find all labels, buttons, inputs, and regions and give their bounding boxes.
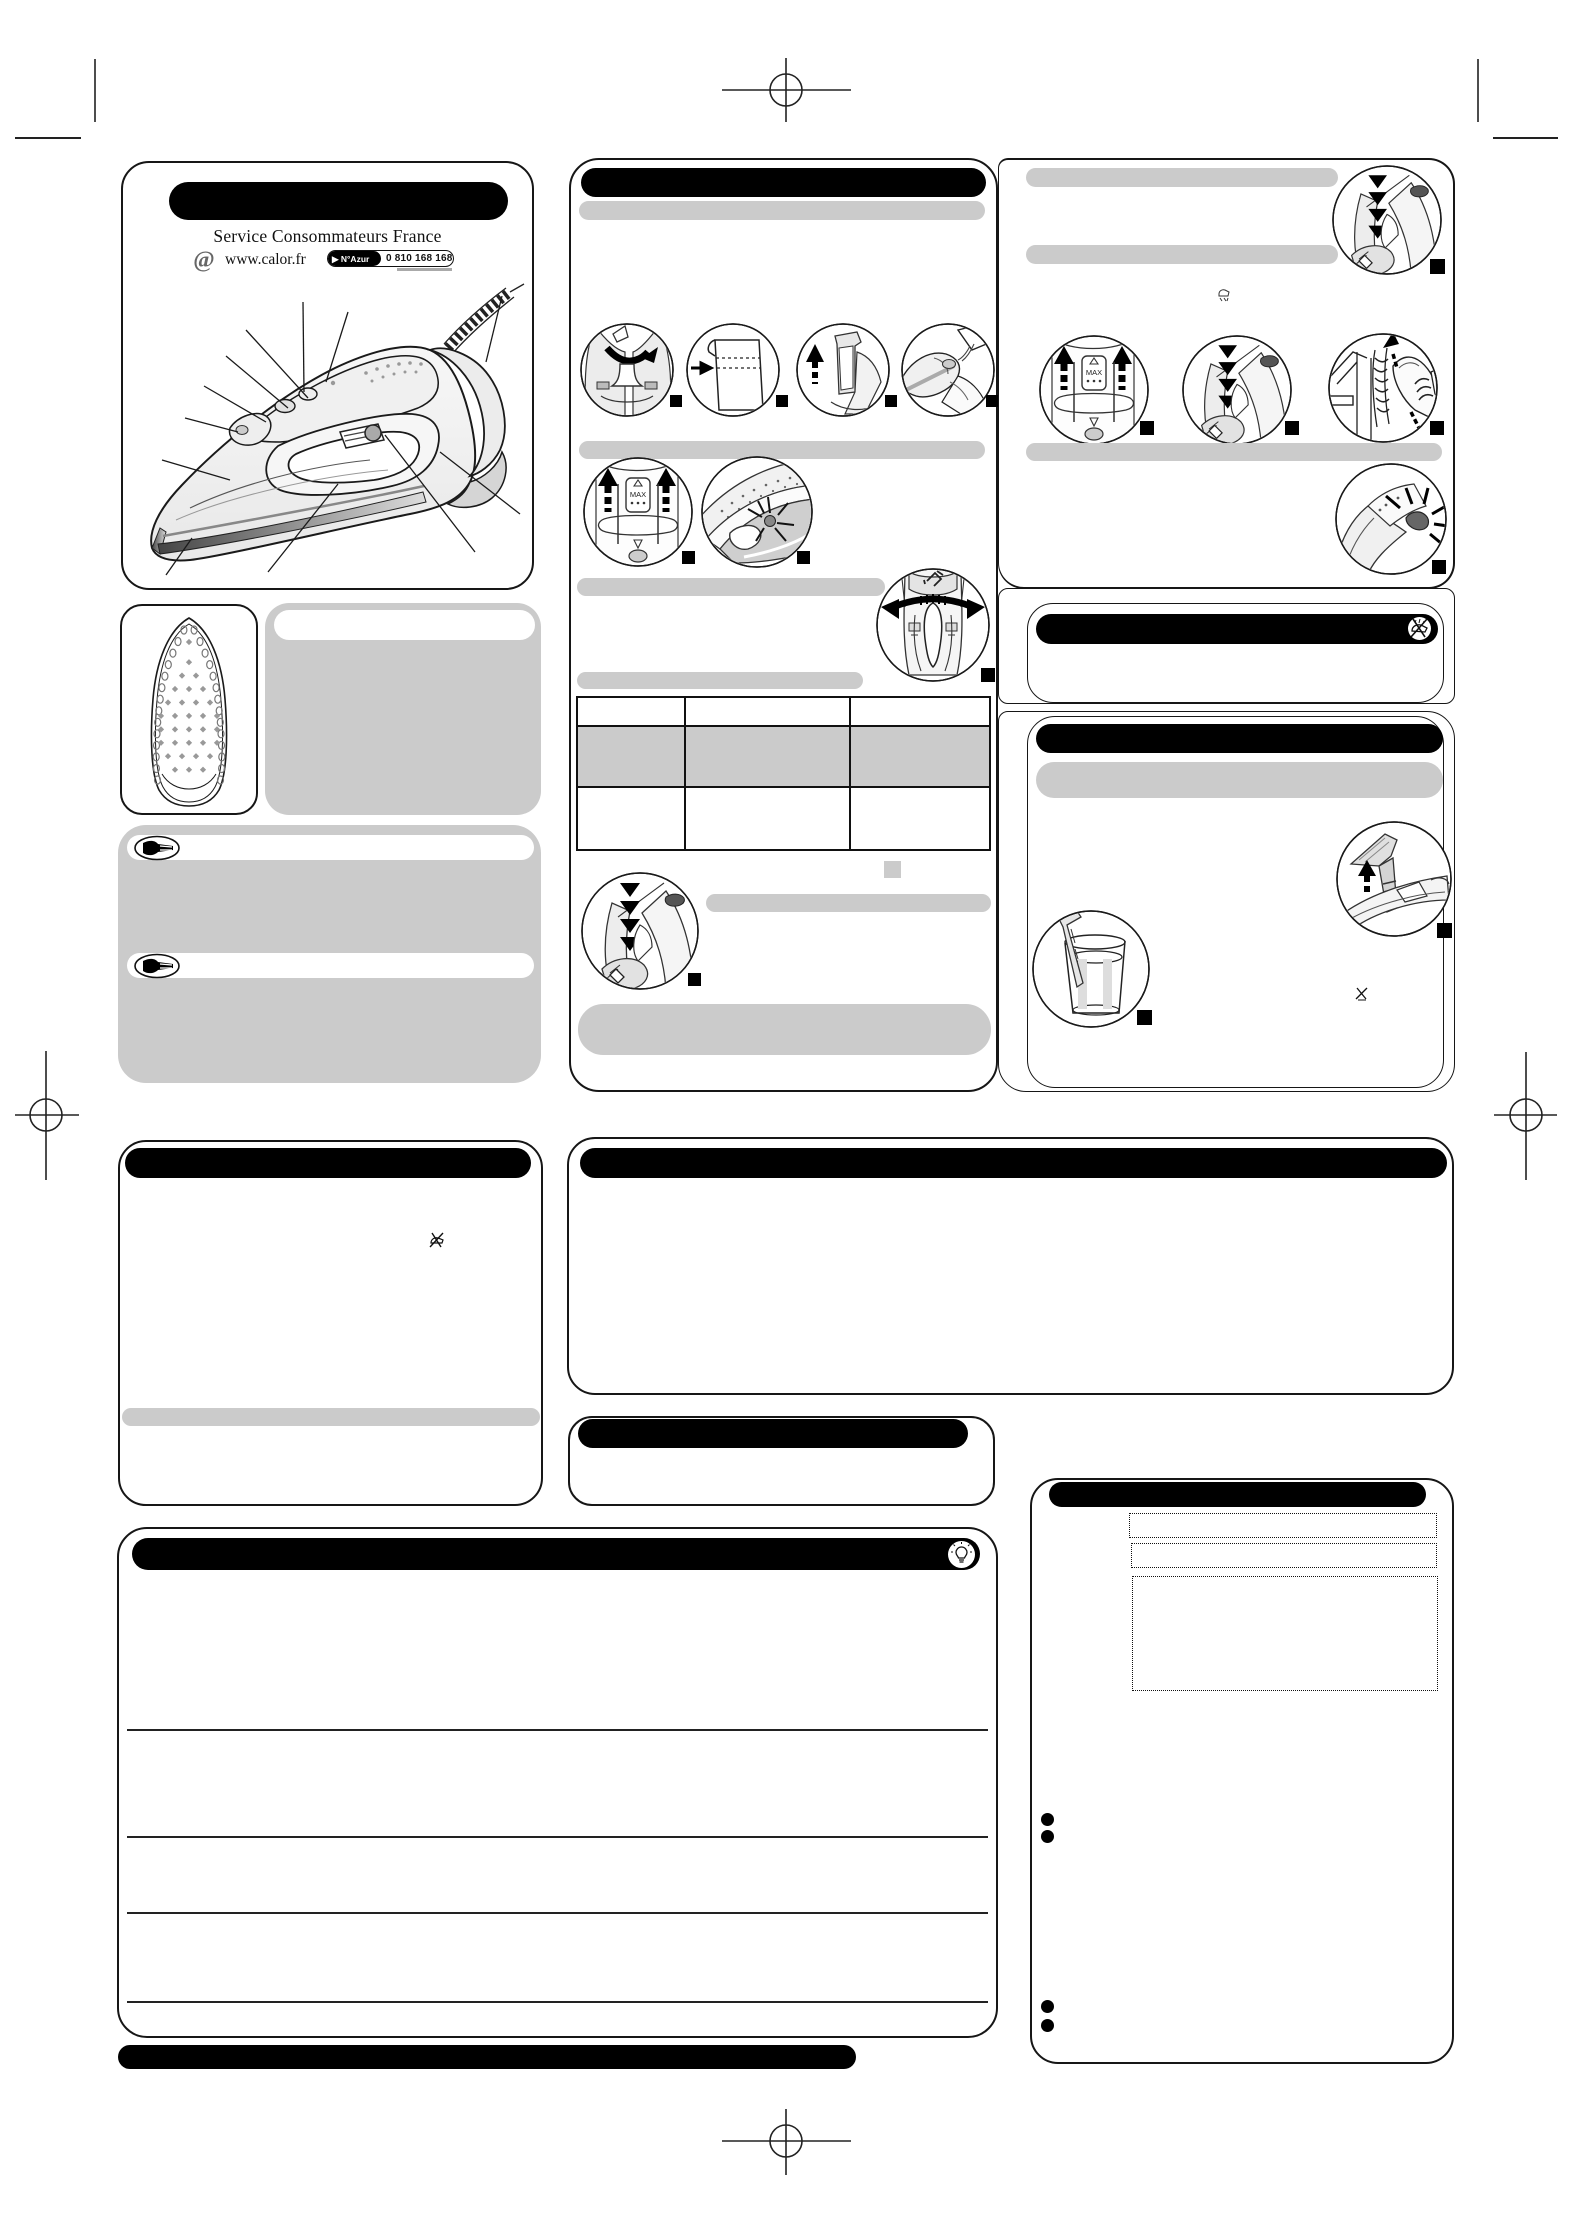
- svg-text:MAX: MAX: [1086, 368, 1102, 377]
- svg-text:MAX: MAX: [630, 490, 646, 499]
